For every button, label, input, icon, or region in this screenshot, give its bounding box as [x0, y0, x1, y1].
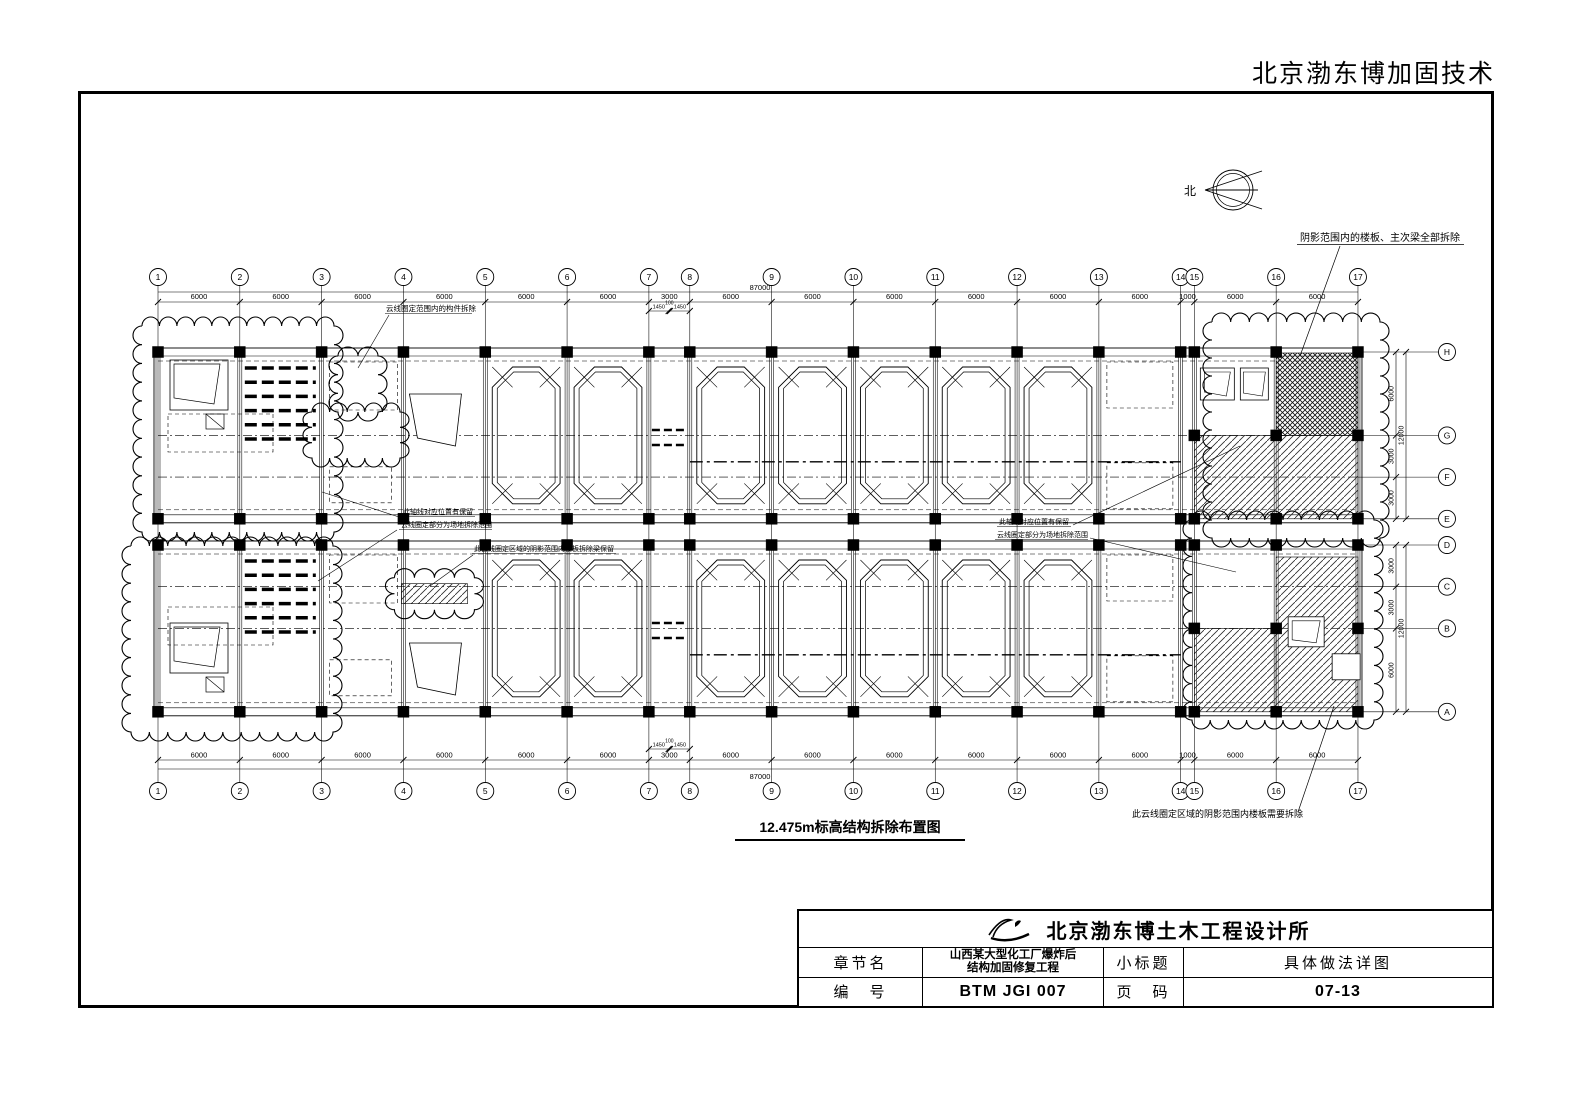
title-block-company-row: 北京渤东博土木工程设计所: [799, 911, 1492, 948]
grid-bubble-label: F: [1444, 472, 1449, 482]
leader-line: [1298, 706, 1334, 812]
leader-line: [1300, 246, 1340, 356]
grid-bubbles-bottom: 1234567891011121314151617: [150, 783, 1367, 800]
svg-text:6000: 6000: [600, 292, 617, 301]
north-arrow: 北: [1184, 170, 1262, 210]
grid-bubble-label: 5: [483, 786, 488, 796]
grid-bubble-label: 6: [565, 272, 570, 282]
grid-bubble-label: 4: [401, 272, 406, 282]
svg-text:6000: 6000: [968, 292, 985, 301]
svg-text:87000: 87000: [750, 772, 771, 781]
svg-text:6000: 6000: [518, 292, 535, 301]
grid-bubble-label: 2: [237, 272, 242, 282]
grid-bubble-label: 1: [156, 272, 161, 282]
svg-text:1450: 1450: [674, 743, 686, 749]
annotation-text: 此轴线对应位置有保留: [403, 507, 473, 516]
company-name: 北京渤东博土木工程设计所: [1047, 915, 1311, 944]
title-block: 北京渤东博土木工程设计所 章节名 山西某大型化工厂爆炸后 结构加固修复工程 小标…: [797, 909, 1494, 1008]
title-block-row-2: 编 号 BTM JGI 007 页 码 07-13: [799, 978, 1492, 1007]
svg-text:6000: 6000: [1389, 662, 1396, 678]
svg-text:6000: 6000: [1227, 751, 1244, 760]
annotation-text: 此轴线对应位置有保留: [999, 517, 1069, 526]
grid-bubble-label: 3: [319, 786, 324, 796]
annotation-text: 云线圈定范围内的构件拆除: [386, 303, 476, 313]
svg-text:6000: 6000: [1050, 751, 1067, 760]
grid-bubble-label: 10: [849, 786, 859, 796]
grid-bubble-label: 13: [1094, 272, 1104, 282]
grid-bubble-label: 16: [1271, 272, 1281, 282]
grid-bubble-label: 12: [1012, 272, 1022, 282]
number-value: BTM JGI 007: [923, 978, 1104, 1007]
grid-bubble-label: B: [1444, 623, 1450, 633]
dim-top: 6000600060006000600060003000600060006000…: [155, 283, 1361, 314]
page-label: 页 码: [1104, 978, 1184, 1007]
grid-bubble-label: 17: [1353, 786, 1363, 796]
grid-bubble-label: 2: [237, 786, 242, 796]
building-lower: [122, 511, 1383, 741]
svg-text:6000: 6000: [191, 751, 208, 760]
grid-bubble-label: 14: [1176, 786, 1186, 796]
subtitle-value: 具体做法详图: [1184, 948, 1492, 977]
dim-bottom: 6000600060006000600060003000600060006000…: [155, 739, 1361, 782]
svg-text:6000: 6000: [600, 751, 617, 760]
title-block-row-1: 章节名 山西某大型化工厂爆炸后 结构加固修复工程 小标题 具体做法详图: [799, 948, 1492, 978]
svg-text:6000: 6000: [191, 292, 208, 301]
grid-bubble-label: A: [1444, 707, 1450, 717]
svg-text:3000: 3000: [1389, 490, 1396, 506]
grid-bubble-label: 14: [1176, 272, 1186, 282]
annotation-text: 此云线圈定区域的阴影范围内楼板需要拆除: [1132, 808, 1303, 819]
annotation-text: 此云线圈定区域的阴影范围内楼板拆除梁保留: [474, 544, 614, 553]
grid-bubble-label: 6: [565, 786, 570, 796]
grid-bubble-label: 1: [156, 786, 161, 796]
logo-icon: [981, 915, 1037, 943]
annotation-text: 云线圈定部分为场地拆除范围: [401, 520, 492, 529]
chapter-value: 山西某大型化工厂爆炸后 结构加固修复工程: [923, 948, 1104, 977]
grid-bubble-label: C: [1444, 582, 1450, 592]
grid-bubble-label: E: [1444, 514, 1450, 524]
svg-text:6000: 6000: [1050, 292, 1067, 301]
grid-bubble-label: 3: [319, 272, 324, 282]
svg-text:6000: 6000: [436, 292, 453, 301]
grid-bubble-label: 15: [1190, 272, 1200, 282]
page-value: 07-13: [1184, 978, 1492, 1007]
grid-bubble-label: 11: [931, 272, 940, 282]
svg-text:1450: 1450: [653, 743, 665, 749]
grid-bubble-label: 17: [1353, 272, 1363, 282]
grid-bubble-label: 4: [401, 786, 406, 796]
dim-right: 30003000600012000DCBA: [1358, 537, 1456, 721]
svg-text:6000: 6000: [1131, 292, 1148, 301]
project-name-line1: 山西某大型化工厂爆炸后: [950, 949, 1077, 962]
svg-text:3000: 3000: [661, 751, 678, 760]
svg-text:3000: 3000: [1389, 600, 1396, 616]
grid-bubble-label: 11: [931, 786, 940, 796]
leader-line: [358, 315, 389, 368]
svg-text:6000: 6000: [1389, 386, 1396, 402]
leader-line: [322, 492, 399, 517]
leader-line: [430, 555, 473, 586]
grid-bubble-label: 7: [647, 272, 652, 282]
svg-text:100: 100: [665, 301, 674, 307]
svg-text:6000: 6000: [722, 292, 739, 301]
svg-text:1450: 1450: [674, 305, 686, 311]
svg-text:6000: 6000: [968, 751, 985, 760]
svg-text:6000: 6000: [804, 292, 821, 301]
grid-bubble-label: 9: [769, 272, 774, 282]
svg-text:6000: 6000: [804, 751, 821, 760]
svg-text:3000: 3000: [1389, 558, 1396, 574]
svg-text:6000: 6000: [1131, 751, 1148, 760]
svg-text:6000: 6000: [272, 751, 289, 760]
dim-right: 60003000300012000HGFE: [1358, 344, 1456, 528]
svg-text:6000: 6000: [436, 751, 453, 760]
grid-bubble-label: 12: [1012, 786, 1022, 796]
svg-text:3000: 3000: [1389, 448, 1396, 464]
grid-bubble-label: 15: [1190, 786, 1200, 796]
annotation-cloud-note-top: 云线圈定范围内的构件拆除: [358, 303, 476, 368]
north-label: 北: [1184, 184, 1196, 198]
grid-bubble-label: H: [1444, 347, 1450, 357]
annotation-bottom-note: 此云线圈定区域的阴影范围内楼板需要拆除: [1132, 706, 1334, 819]
svg-text:6000: 6000: [1227, 292, 1244, 301]
annotation-text: 云线圈定部分为场地拆除范围: [997, 530, 1088, 539]
grid-bubble-label: 8: [687, 786, 692, 796]
grid-bubble-label: 10: [849, 272, 859, 282]
svg-text:1000: 1000: [1179, 751, 1196, 760]
svg-text:6000: 6000: [354, 292, 371, 301]
svg-text:100: 100: [665, 739, 674, 745]
grid-bubble-label: 5: [483, 272, 488, 282]
svg-text:6000: 6000: [272, 292, 289, 301]
annotation-text: 阴影范围内的楼板、主次梁全部拆除: [1300, 231, 1460, 244]
svg-text:6000: 6000: [886, 292, 903, 301]
number-label: 编 号: [799, 978, 923, 1007]
grid-bubble-label: 8: [687, 272, 692, 282]
grid-bubble-label: G: [1444, 430, 1451, 440]
svg-text:6000: 6000: [518, 751, 535, 760]
grid-bubble-label: 16: [1271, 786, 1281, 796]
svg-text:6000: 6000: [354, 751, 371, 760]
svg-text:6000: 6000: [886, 751, 903, 760]
sheet: 北京渤东博加固技术 600060006000600060006000300060…: [0, 0, 1571, 1098]
grid-bubble-label: 9: [769, 786, 774, 796]
project-name-line2: 结构加固修复工程: [950, 962, 1077, 975]
svg-text:1450: 1450: [653, 305, 665, 311]
svg-text:1000: 1000: [1179, 292, 1196, 301]
subtitle-label: 小标题: [1104, 948, 1184, 977]
svg-text:6000: 6000: [722, 751, 739, 760]
annotation-axis-keep-left: 此轴线对应位置有保留 云线圈定部分为场地拆除范围: [318, 492, 492, 581]
drawing-title: 12.475m标高结构拆除布置图: [735, 817, 965, 841]
plan-geometry: 6000600060006000600060003000600060006000…: [122, 269, 1456, 800]
grid-bubble-label: 13: [1094, 786, 1104, 796]
chapter-label: 章节名: [799, 948, 923, 977]
grid-bubble-label: D: [1444, 540, 1450, 550]
grid-bubble-label: 7: [647, 786, 652, 796]
